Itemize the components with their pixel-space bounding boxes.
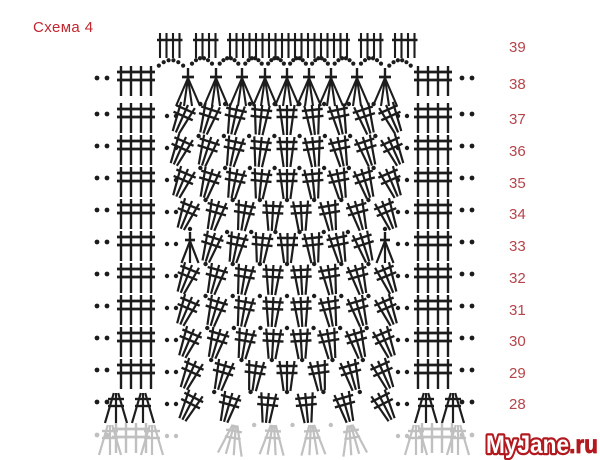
watermark-layer: MyJane.ru xyxy=(0,0,600,460)
watermark-main: MyJane xyxy=(486,431,569,459)
watermark-suffix: .ru xyxy=(569,431,598,459)
watermark: MyJane.ru xyxy=(486,431,598,459)
screenshot-root: Схема 4 393837363534333231302928 MyJane.… xyxy=(0,0,600,460)
